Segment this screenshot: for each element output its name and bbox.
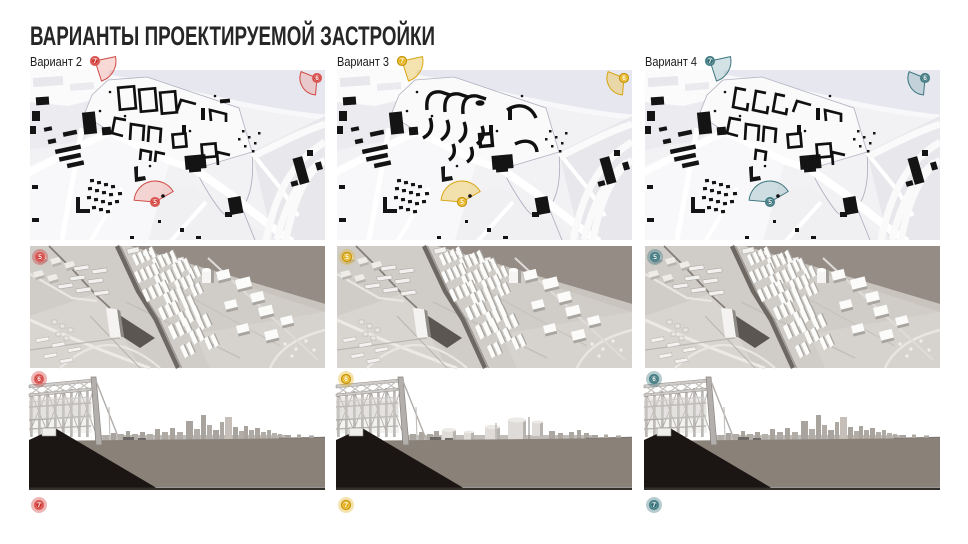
svg-text:6: 6 [37,376,41,383]
svg-text:5: 5 [38,254,42,261]
svg-text:6: 6 [652,376,656,383]
svg-text:Вариант 3: Вариант 3 [337,54,389,69]
svg-text:5: 5 [345,254,349,261]
svg-text:7: 7 [37,502,41,509]
svg-text:7: 7 [652,502,656,509]
svg-text:6: 6 [923,75,927,82]
svg-text:7: 7 [93,58,97,65]
svg-text:5: 5 [153,199,157,206]
svg-text:6: 6 [344,376,348,383]
svg-text:5: 5 [768,199,772,206]
svg-text:5: 5 [460,199,464,206]
svg-text:7: 7 [708,58,712,65]
svg-text:Вариант 2: Вариант 2 [30,54,82,69]
svg-text:6: 6 [315,75,319,82]
svg-text:6: 6 [622,75,626,82]
svg-text:ВАРИАНТЫ ПРОЕКТИРУЕМОЙ ЗАСТРОЙ: ВАРИАНТЫ ПРОЕКТИРУЕМОЙ ЗАСТРОЙКИ [30,21,435,51]
svg-text:7: 7 [400,58,404,65]
svg-text:Вариант 4: Вариант 4 [645,54,697,69]
svg-text:5: 5 [653,254,657,261]
svg-text:7: 7 [344,502,348,509]
